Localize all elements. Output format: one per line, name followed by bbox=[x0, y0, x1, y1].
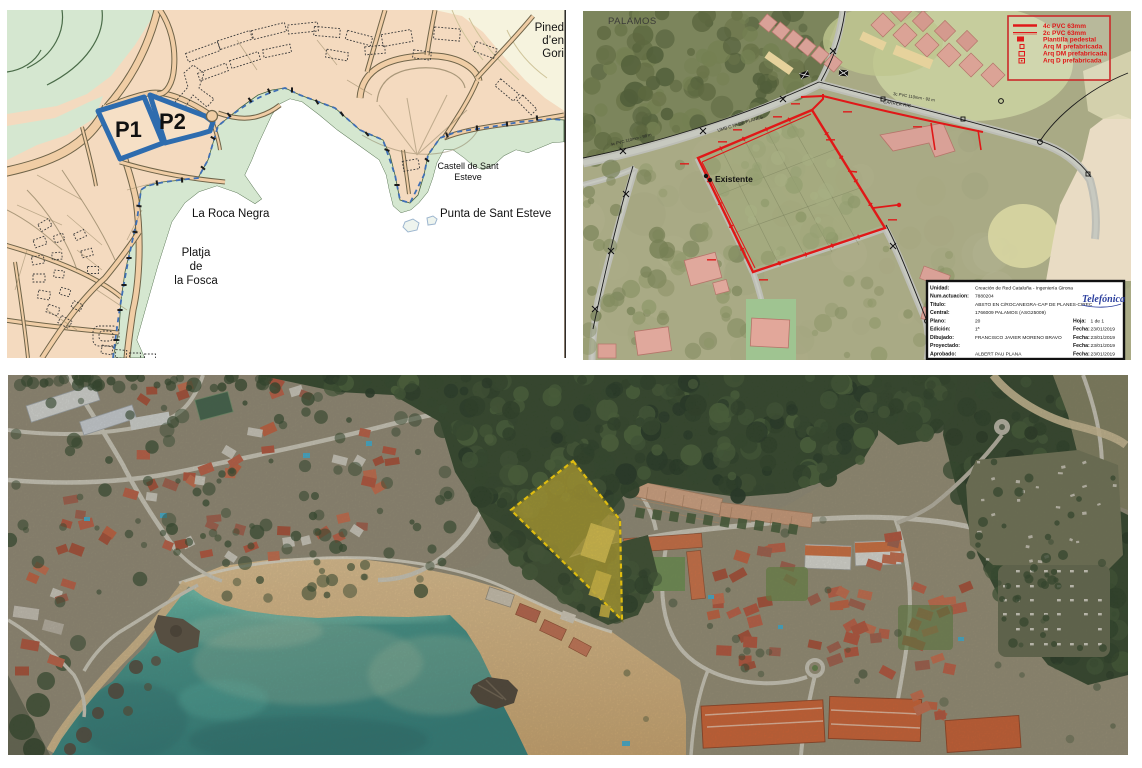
svg-text:Creación de Red Cataluña - Ing: Creación de Red Cataluña - Ingeniería Gi… bbox=[975, 286, 1073, 292]
svg-text:1766009 PALAMOS (ASG25009): 1766009 PALAMOS (ASG25009) bbox=[975, 310, 1046, 316]
svg-text:Arq DM prefabricada: Arq DM prefabricada bbox=[1043, 51, 1107, 58]
svg-text:Plano:: Plano: bbox=[930, 318, 946, 324]
svg-text:Telefónica: Telefónica bbox=[1082, 294, 1125, 305]
svg-text:Edición:: Edición: bbox=[930, 327, 951, 333]
svg-text:Titulo:: Titulo: bbox=[930, 302, 946, 308]
svg-text:d’en: d’en bbox=[542, 35, 564, 47]
svg-text:P2: P2 bbox=[159, 109, 186, 134]
svg-text:Unidad:: Unidad: bbox=[930, 286, 950, 292]
svg-text:la Fosca: la Fosca bbox=[174, 275, 218, 287]
svg-text:Castell de Sant: Castell de Sant bbox=[437, 161, 499, 171]
svg-text:La Roca Negra: La Roca Negra bbox=[192, 208, 270, 220]
svg-text:Dibujado:: Dibujado: bbox=[930, 335, 954, 341]
svg-text:Pined: Pined bbox=[535, 22, 564, 34]
svg-text:Central:: Central: bbox=[930, 310, 950, 316]
svg-text:FRANCISCO JAVIER MORENO BRAVO: FRANCISCO JAVIER MORENO BRAVO bbox=[975, 335, 1062, 341]
svg-text:23/01/2019: 23/01/2019 bbox=[1091, 327, 1116, 333]
svg-text:Arq M prefabricada: Arq M prefabricada bbox=[1043, 44, 1103, 51]
svg-text:Hoja:: Hoja: bbox=[1073, 318, 1086, 324]
svg-text:23/01/2019: 23/01/2019 bbox=[1091, 343, 1116, 349]
svg-text:Fecha:: Fecha: bbox=[1073, 335, 1090, 341]
svg-text:Gori: Gori bbox=[542, 48, 564, 60]
svg-text:de: de bbox=[190, 261, 203, 273]
svg-text:1ª: 1ª bbox=[975, 327, 980, 333]
svg-text:20: 20 bbox=[975, 318, 981, 324]
svg-text:ALBERT PAU PLANA: ALBERT PAU PLANA bbox=[975, 351, 1022, 357]
svg-text:Aprobado:: Aprobado: bbox=[930, 351, 956, 357]
svg-text:4c PVC 63mm: 4c PVC 63mm bbox=[1043, 23, 1086, 30]
svg-text:ABSTO EN C/ROCANEGRA-CAP DE PL: ABSTO EN C/ROCANEGRA-CAP DE PLANES-CIREC bbox=[975, 302, 1093, 308]
svg-text:7880204: 7880204 bbox=[975, 294, 994, 300]
svg-text:Platja: Platja bbox=[182, 247, 211, 259]
svg-text:Proyectado:: Proyectado: bbox=[930, 343, 960, 349]
svg-text:Num.actuacion:: Num.actuacion: bbox=[930, 294, 969, 300]
svg-text:Fecha:: Fecha: bbox=[1073, 351, 1090, 357]
svg-text:P1: P1 bbox=[115, 117, 142, 142]
svg-text:23/01/2019: 23/01/2019 bbox=[1091, 335, 1116, 341]
svg-text:Fecha:: Fecha: bbox=[1073, 343, 1090, 349]
svg-text:1 de 1: 1 de 1 bbox=[1091, 318, 1105, 324]
svg-text:Plantilla pedestal: Plantilla pedestal bbox=[1043, 37, 1096, 44]
svg-text:Existente: Existente bbox=[715, 174, 753, 184]
svg-text:Fecha:: Fecha: bbox=[1073, 327, 1090, 333]
svg-text:23/01/2019: 23/01/2019 bbox=[1091, 351, 1116, 357]
svg-text:Arq D prefabricada: Arq D prefabricada bbox=[1043, 58, 1102, 65]
svg-text:Esteve: Esteve bbox=[454, 172, 482, 182]
svg-text:PALAMOS: PALAMOS bbox=[608, 16, 657, 27]
svg-text:Punta de Sant Esteve: Punta de Sant Esteve bbox=[440, 208, 551, 220]
